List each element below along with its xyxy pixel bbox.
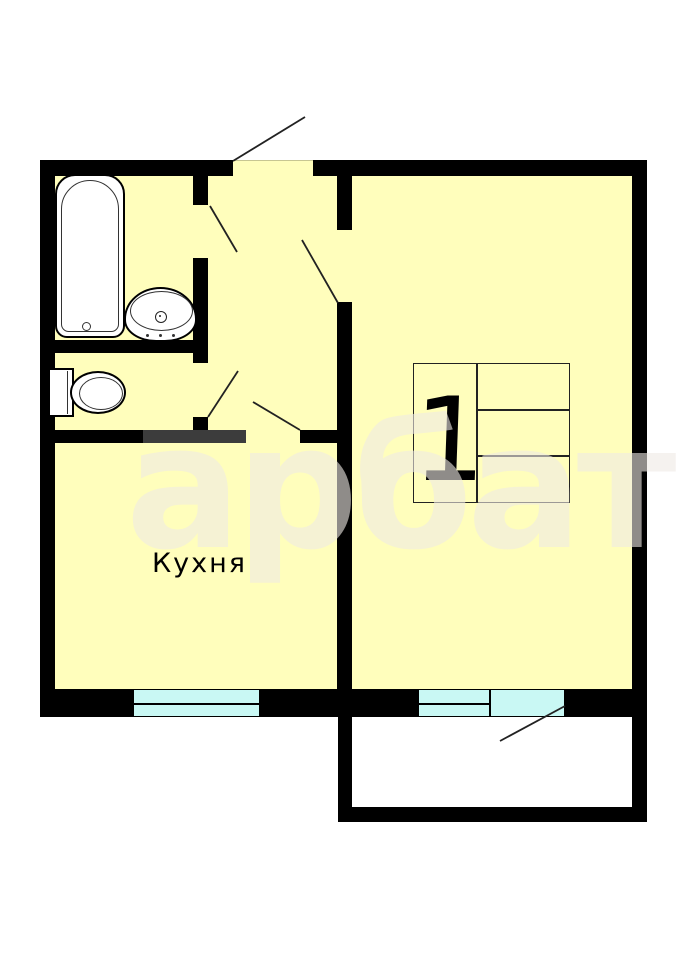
door-swing-overlay <box>0 0 686 960</box>
entrance-door-swing-line <box>233 117 305 161</box>
bathroom-door-swing-line <box>210 206 237 252</box>
kitchen-door-swing-line <box>253 402 300 430</box>
wc-door-swing-line <box>208 371 238 417</box>
kitchen-label: Кухня <box>152 548 247 579</box>
living-room-door-swing-line <box>302 240 338 303</box>
balcony-door-swing-line <box>500 706 565 741</box>
floor-plan: 1 Кухня арбат <box>0 0 686 960</box>
